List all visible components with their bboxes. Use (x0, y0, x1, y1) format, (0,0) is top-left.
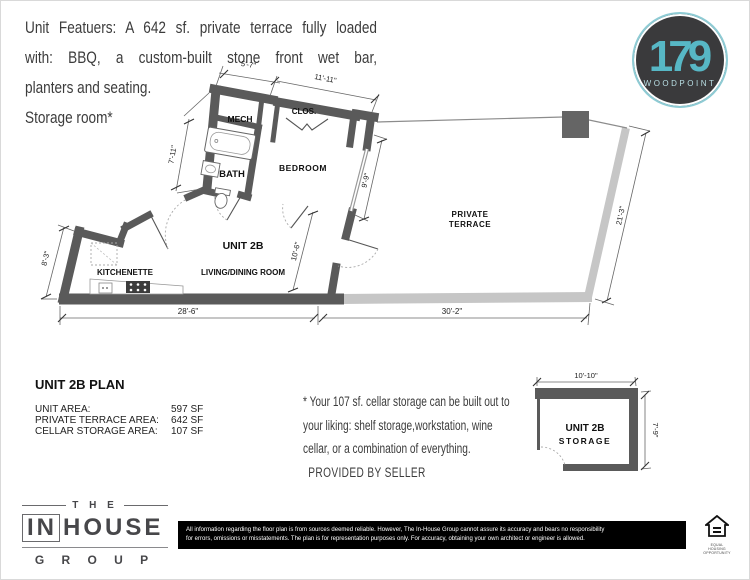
feature-line: planters and seating. (25, 73, 377, 103)
summary-label: CELLAR STORAGE AREA: (35, 426, 171, 437)
room-label-terrace-2: TERRACE (449, 220, 491, 229)
dim-28-6: 28'-6" (178, 307, 199, 316)
feature-text: Unit Featuers: A 642 sf. private terrace… (25, 13, 377, 133)
building-logo: 179 WOODPOINT (632, 12, 728, 108)
unit-summary: UNIT 2B PLAN UNIT AREA: 597 SF PRIVATE T… (35, 377, 295, 437)
terrace-wet-bar-block (562, 111, 589, 138)
summary-value: 642 SF (171, 415, 203, 426)
storage-dim-width: 10'-10" (574, 371, 598, 380)
equal-housing-logo: EQUAL HOUSING OPPORTUNITY (703, 515, 731, 555)
summary-value: 107 SF (171, 426, 203, 437)
note-line: * Your 107 sf. cellar storage can be bui… (303, 390, 551, 414)
building-logo-name: WOODPOINT (644, 79, 717, 88)
dim-10-6: 10'-6" (289, 241, 302, 262)
storage-label-2: STORAGE (559, 436, 611, 446)
brand-group: G R O U P (22, 553, 168, 567)
room-label-living: LIVING/DINING ROOM (201, 268, 285, 277)
equal-housing-caption: EQUAL HOUSING OPPORTUNITY (703, 543, 731, 555)
summary-row: UNIT AREA: 597 SF (35, 404, 295, 415)
room-label-terrace-1: PRIVATE (452, 210, 489, 219)
terrace-walls (341, 111, 627, 299)
brand-the-row: T H E (22, 500, 168, 511)
unit-label: UNIT 2B (223, 240, 264, 252)
note-line: cellar, or a combination of everything. (303, 437, 551, 461)
kitchen-sink (99, 283, 112, 293)
dim-7-11: 7'-11" (166, 144, 178, 164)
brand-house: HOUSE (63, 514, 163, 542)
note-line: your liking: shelf storage,workstation, … (303, 414, 551, 438)
note-provided-by-seller: PROVIDED BY SELLER (303, 461, 551, 485)
dim-8-3: 8'-3" (39, 250, 51, 267)
rule-right (124, 505, 168, 506)
brand-divider (22, 547, 168, 548)
disclaimer-line: All information regarding the floor plan… (186, 526, 678, 535)
rule-left (22, 505, 66, 506)
brand-name: IN HOUSE (22, 514, 168, 542)
brand-in-boxed: IN (22, 514, 60, 542)
cellar-storage-note: * Your 107 sf. cellar storage can be bui… (303, 390, 551, 484)
building-logo-number: 179 (649, 37, 707, 77)
summary-row: PRIVATE TERRACE AREA: 642 SF (35, 415, 295, 426)
door-swings (150, 118, 378, 267)
disclaimer-bar: All information regarding the floor plan… (178, 521, 686, 549)
feature-line: with: BBQ, a custom-built stone front we… (25, 43, 377, 73)
brand-the: T H E (72, 500, 118, 511)
storage-plan: 10'-10" 7'-9" UNIT 2B STORAGE (533, 371, 660, 471)
disclaimer-line: for errors, omissions or misstatements. … (186, 535, 678, 544)
room-label-bath: BATH (219, 169, 245, 180)
feature-line: Unit Featuers: A 642 sf. private terrace… (25, 13, 377, 43)
storage-label-1: UNIT 2B (566, 423, 605, 434)
feature-line: Storage room* (25, 103, 377, 133)
dim-30-2: 30'-2" (442, 307, 463, 316)
room-label-kitchenette: KITCHENETTE (97, 268, 154, 277)
summary-label: UNIT AREA: (35, 404, 171, 415)
equal-housing-icon (705, 515, 729, 537)
summary-title: UNIT 2B PLAN (35, 377, 295, 392)
toilet (212, 188, 230, 210)
bath-sink (201, 161, 220, 178)
summary-value: 597 SF (171, 404, 203, 415)
floor-plan-page: 5'-7" 11'-11" 7'-11" 8'-3" 9'-9" 10'-6" … (0, 0, 750, 580)
inhouse-group-logo: T H E IN HOUSE G R O U P (22, 500, 168, 567)
summary-label: PRIVATE TERRACE AREA: (35, 415, 171, 426)
room-label-bedroom: BEDROOM (279, 163, 327, 173)
summary-row: CELLAR STORAGE AREA: 107 SF (35, 426, 295, 437)
storage-dim-depth: 7'-9" (651, 423, 660, 438)
